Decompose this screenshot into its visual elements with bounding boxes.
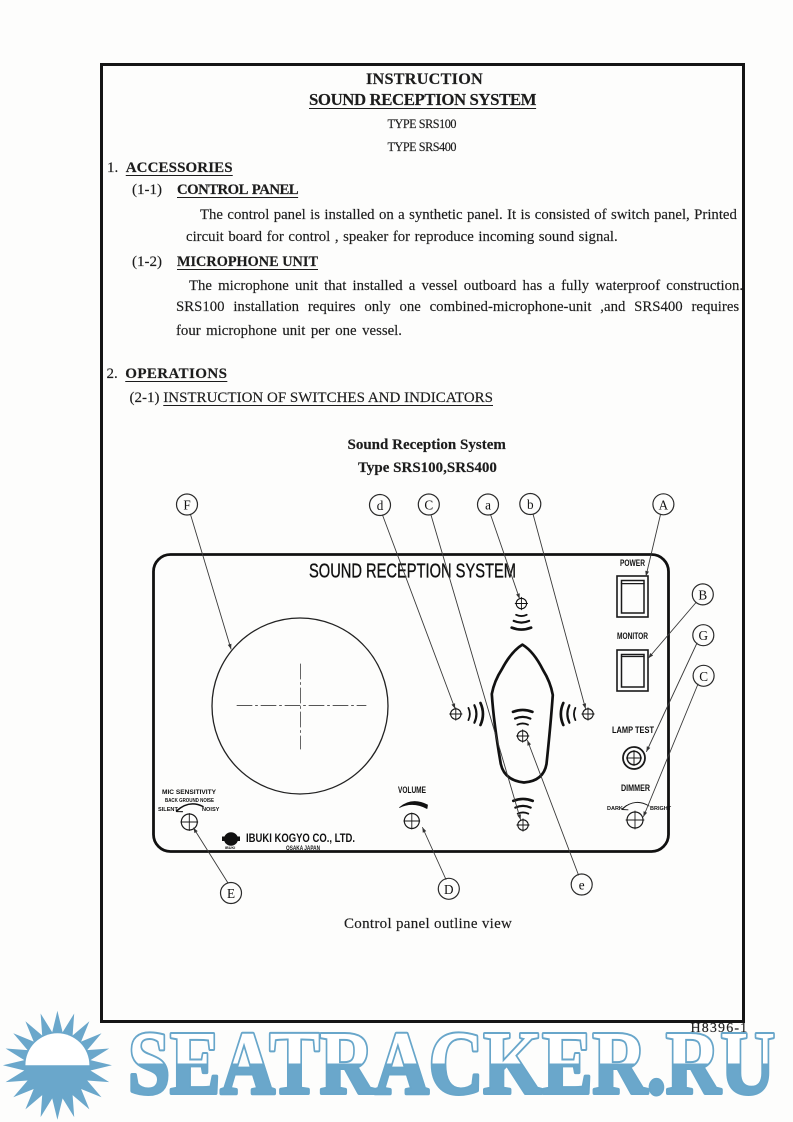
svg-text:BACK GROUND NOISE: BACK GROUND NOISE <box>165 798 214 804</box>
svg-text:IBUKI: IBUKI <box>225 846 235 850</box>
svg-text:DARK: DARK <box>607 806 623 812</box>
svg-text:B: B <box>698 587 707 602</box>
svg-text:d: d <box>377 498 384 513</box>
svg-text:POWER: POWER <box>620 558 645 568</box>
svg-text:e: e <box>579 878 585 893</box>
svg-text:b: b <box>527 497 534 512</box>
svg-text:OSAKA JAPAN: OSAKA JAPAN <box>286 845 320 852</box>
svg-text:VOLUME: VOLUME <box>398 785 426 795</box>
svg-text:NOISY: NOISY <box>202 807 220 813</box>
svg-text:SOUND RECEPTION SYSTEM: SOUND RECEPTION SYSTEM <box>309 561 516 583</box>
svg-text:D: D <box>444 882 454 897</box>
svg-text:MIC SENSITIVITY: MIC SENSITIVITY <box>162 789 217 796</box>
svg-text:DIMMER: DIMMER <box>621 783 650 793</box>
svg-text:BRIGHT: BRIGHT <box>650 806 672 812</box>
svg-text:MONITOR: MONITOR <box>617 631 648 641</box>
svg-text:E: E <box>227 886 235 901</box>
svg-text:LAMP TEST: LAMP TEST <box>612 725 654 735</box>
svg-text:SILENT: SILENT <box>158 807 178 813</box>
svg-text:SEATRACKER.RU: SEATRACKER.RU <box>128 1014 775 1113</box>
svg-text:F: F <box>183 498 190 513</box>
svg-text:C: C <box>699 669 708 684</box>
svg-text:G: G <box>699 628 709 643</box>
svg-text:IBUKI KOGYO CO., LTD.: IBUKI KOGYO CO., LTD. <box>246 831 355 845</box>
svg-text:a: a <box>485 498 491 513</box>
svg-text:A: A <box>659 497 669 512</box>
svg-text:C: C <box>424 498 433 513</box>
